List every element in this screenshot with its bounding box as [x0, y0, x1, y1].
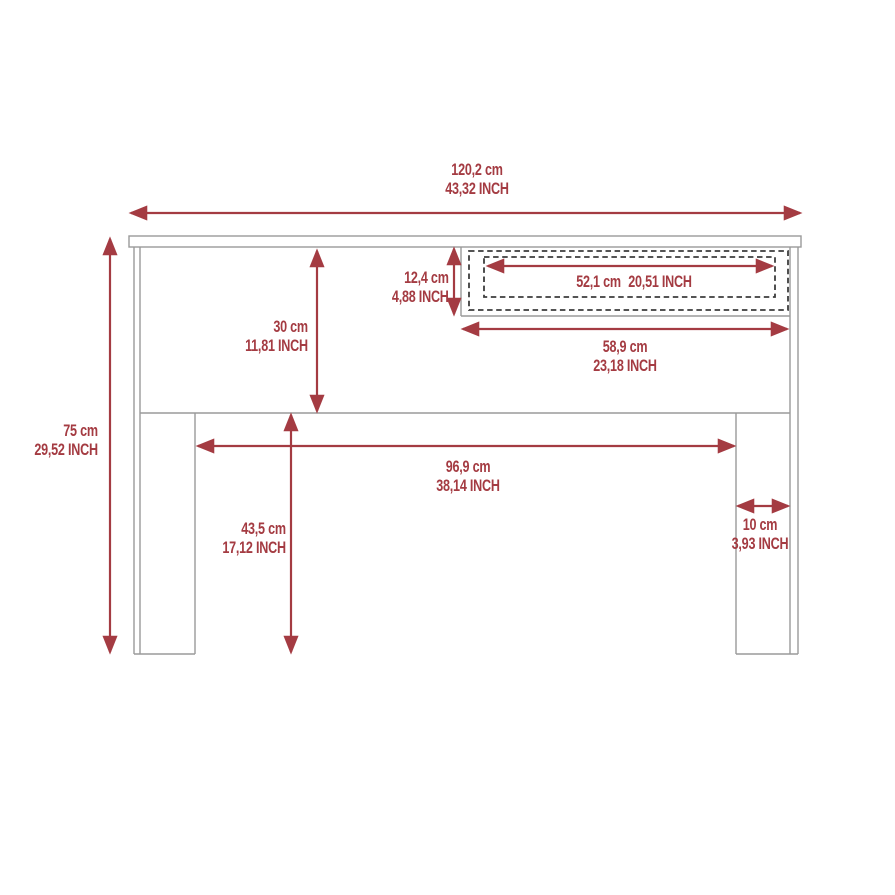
- drawer-inner-width-inch: 20,51 INCH: [628, 272, 692, 291]
- dimension-label-panel-height: 30 cm 11,81 INCH: [245, 317, 308, 355]
- drawer-width-cm: 58,9 cm: [514, 337, 736, 356]
- tabletop: [129, 236, 801, 247]
- leg-height-inch: 17,12 INCH: [222, 538, 286, 557]
- inner-width-inch: 38,14 INCH: [357, 476, 579, 495]
- leg-width-cm: 10 cm: [649, 515, 871, 534]
- overall-width-cm: 120,2 cm: [366, 160, 588, 179]
- dimension-label-drawer-height: 12,4 cm 4,88 INCH: [392, 268, 449, 306]
- panel-height-inch: 11,81 INCH: [245, 336, 308, 355]
- drawer-height-cm: 12,4 cm: [392, 268, 449, 287]
- inner-width-cm: 96,9 cm: [357, 457, 579, 476]
- overall-width-inch: 43,32 INCH: [366, 179, 588, 198]
- panel-height-cm: 30 cm: [245, 317, 308, 336]
- drawer-height-inch: 4,88 INCH: [392, 287, 449, 306]
- dimension-label-drawer-inner-width: 52,1 cm20,51 INCH: [523, 272, 745, 291]
- diagram-drawing: [0, 0, 895, 895]
- drawer-inner-width-cm: 52,1 cm: [576, 272, 621, 291]
- dimension-label-inner-width: 96,9 cm 38,14 INCH: [357, 457, 579, 495]
- leg-height-cm: 43,5 cm: [222, 519, 286, 538]
- dimension-label-overall-height: 75 cm 29,52 INCH: [34, 421, 98, 459]
- dimension-label-overall-width: 120,2 cm 43,32 INCH: [366, 160, 588, 198]
- overall-height-inch: 29,52 INCH: [34, 440, 98, 459]
- drawer-width-inch: 23,18 INCH: [514, 356, 736, 375]
- dimension-label-leg-width: 10 cm 3,93 INCH: [649, 515, 871, 553]
- furniture-dimension-diagram: 120,2 cm 43,32 INCH 75 cm 29,52 INCH 30 …: [0, 0, 895, 895]
- dimension-label-leg-height: 43,5 cm 17,12 INCH: [222, 519, 286, 557]
- leg-width-inch: 3,93 INCH: [649, 534, 871, 553]
- dimension-label-drawer-width: 58,9 cm 23,18 INCH: [514, 337, 736, 375]
- overall-height-cm: 75 cm: [34, 421, 98, 440]
